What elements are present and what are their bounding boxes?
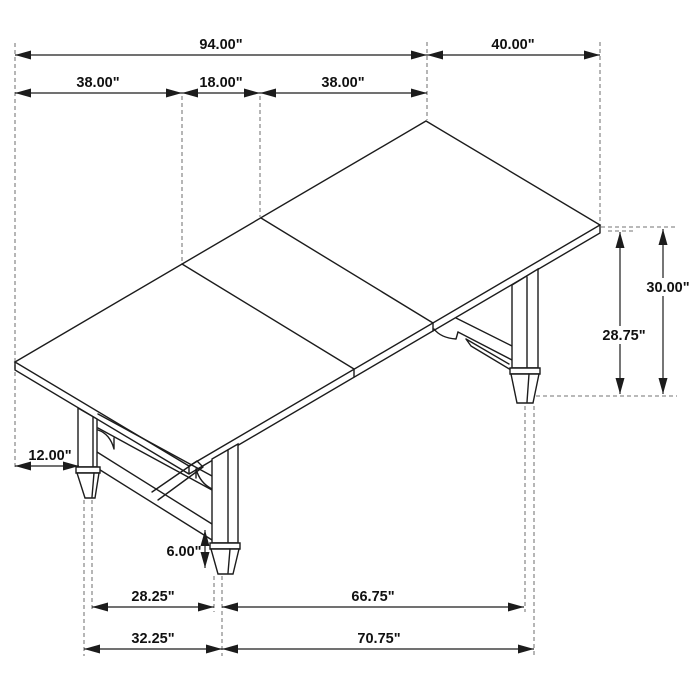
arrowhead (198, 603, 214, 612)
arrowhead (659, 378, 668, 394)
arrowhead (518, 645, 534, 654)
arrowhead (182, 89, 198, 98)
dim-label-table-length: 94.00" (199, 37, 242, 53)
rear-right-leg (512, 269, 538, 368)
dim-label-apron-height: 28.75" (602, 328, 645, 344)
arrowhead (244, 89, 260, 98)
arrowhead (616, 378, 625, 394)
dim-label-overall-height: 30.00" (646, 280, 689, 296)
front-left-leg (212, 444, 238, 543)
arrowhead (222, 645, 238, 654)
rear-left-leg (78, 408, 97, 467)
dim-label-leaf-section: 18.00" (199, 75, 242, 91)
arrowhead (411, 89, 427, 98)
dim-label-left-section: 38.00" (76, 75, 119, 91)
rear-left-foot-band (76, 467, 100, 473)
arrowhead (508, 603, 524, 612)
table-drawing (15, 121, 600, 574)
dimension-drawing-canvas: 94.00" 40.00" 38.00" 18.00" 38.00" 12.00… (0, 0, 700, 700)
dim-label-leg-spacing-inner: 28.25" (131, 589, 174, 605)
dim-label-leg-spacing-outer: 32.25" (131, 631, 174, 647)
rear-left-foot (77, 473, 99, 498)
dim-label-leg-spacing-long-inner: 66.75" (351, 589, 394, 605)
dim-label-table-depth: 40.00" (491, 37, 534, 53)
right-stretcher-beam (466, 339, 511, 370)
arrowhead (584, 51, 600, 60)
rear-right-foot (511, 374, 539, 403)
dim-label-right-section: 38.00" (321, 75, 364, 91)
arrowhead (411, 51, 427, 60)
arrowhead (206, 645, 222, 654)
arrowhead (659, 229, 668, 245)
arrowhead (427, 51, 443, 60)
dim-label-foot-height: 6.00" (166, 544, 201, 560)
right-apron-corbel (434, 329, 458, 339)
arrowhead (222, 603, 238, 612)
rear-right-foot-band (510, 368, 540, 374)
front-left-foot-band (210, 543, 240, 549)
arrowhead (201, 552, 210, 568)
arrowhead (84, 645, 100, 654)
table-dimension-drawing: 94.00" 40.00" 38.00" 18.00" 38.00" 12.00… (0, 0, 700, 700)
front-left-foot (211, 549, 239, 574)
arrowhead (15, 51, 31, 60)
arrowhead (616, 232, 625, 248)
dim-label-leg-spacing-long-outer: 70.75" (357, 631, 400, 647)
left-stretcher-beam (97, 452, 212, 540)
arrowhead (92, 603, 108, 612)
arrowhead (15, 89, 31, 98)
dim-label-end-overhang: 12.00" (28, 448, 71, 464)
arrowhead (166, 89, 182, 98)
arrowhead (260, 89, 276, 98)
